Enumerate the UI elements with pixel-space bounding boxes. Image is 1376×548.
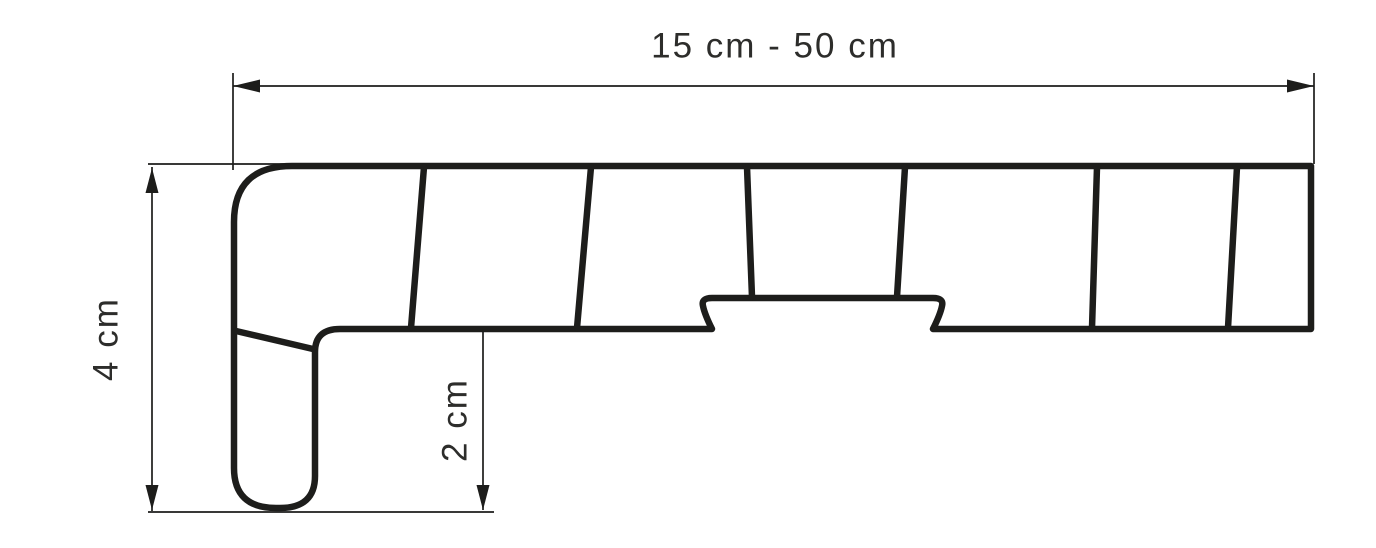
rib-6 <box>1228 167 1237 328</box>
profile-outline <box>234 166 1311 508</box>
rib-3 <box>747 167 752 297</box>
rib-5 <box>1092 167 1097 328</box>
nose-drop-dimension-label: 2 cm <box>436 378 475 462</box>
dimension-labels: 15 cm - 50 cm 4 cm 2 cm <box>87 27 899 462</box>
arrow-down-left-icon <box>146 485 159 510</box>
width-dimension-label: 15 cm - 50 cm <box>651 27 899 66</box>
rib-4 <box>897 167 905 297</box>
arrow-right-icon <box>1287 80 1314 93</box>
diagram-canvas: 15 cm - 50 cm 4 cm 2 cm <box>0 0 1376 548</box>
dimension-linework <box>148 73 1314 512</box>
height-dimension-label: 4 cm <box>87 297 126 381</box>
rib-1 <box>411 167 424 328</box>
profile-linework <box>234 166 1311 508</box>
arrow-up-icon <box>146 168 159 193</box>
nose-web-line <box>236 331 313 349</box>
arrow-left-icon <box>233 80 260 93</box>
sill-profile-diagram: 15 cm - 50 cm 4 cm 2 cm <box>0 0 1376 548</box>
arrow-down-inner-icon <box>477 485 490 510</box>
rib-2 <box>577 167 591 328</box>
